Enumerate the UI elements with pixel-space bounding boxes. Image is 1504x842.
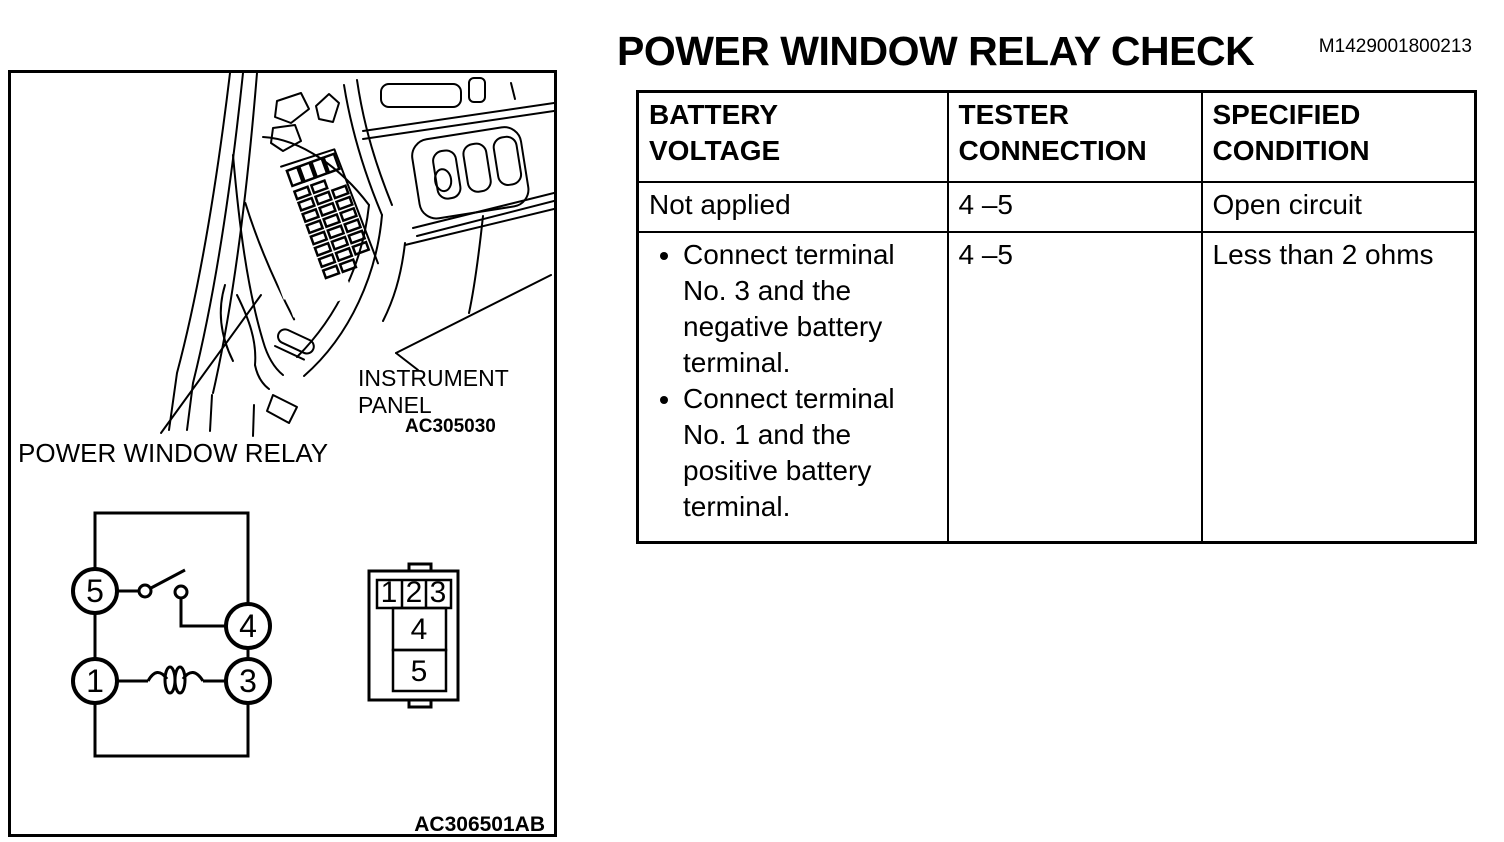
coil-icon <box>117 667 226 693</box>
connector-tab-bottom <box>409 700 431 707</box>
page-title: POWER WINDOW RELAY CHECK <box>617 31 1254 72</box>
dash-lower-seam <box>383 193 554 353</box>
connector-pinout: 1 2 3 4 5 <box>369 564 458 707</box>
circuit-diagram: 5 4 1 3 <box>73 513 270 756</box>
column-header-battery-voltage: BATTERY VOLTAGE <box>638 92 948 183</box>
instrument-panel-label-line1: INSTRUMENT <box>358 365 509 391</box>
pin-number-1: 1 <box>381 576 398 609</box>
list-item: Connect terminal No. 1 and the positive … <box>683 381 941 525</box>
harness-shapes <box>271 93 339 151</box>
power-window-relay-label: POWER WINDOW RELAY <box>18 438 328 468</box>
column-header-specified-condition: SPECIFIED CONDITION <box>1202 92 1476 183</box>
terminal-number-4: 4 <box>239 608 257 644</box>
document-code: M1429001800213 <box>1172 37 1472 56</box>
cell-tester-connection: 4 –5 <box>948 182 1202 232</box>
battery-voltage-steps: Connect terminal No. 3 and the negative … <box>649 237 941 525</box>
switch-contact <box>175 586 187 598</box>
location-figure: INSTRUMENT PANEL AC305030 POWER WINDOW R… <box>8 70 557 837</box>
cell-tester-connection: 4 –5 <box>948 232 1202 543</box>
table-row: Connect terminal No. 3 and the negative … <box>638 232 1476 543</box>
instrument-panel-drawing: INSTRUMENT PANEL AC305030 POWER WINDOW R… <box>11 73 554 834</box>
manual-page: POWER WINDOW RELAY CHECK M1429001800213 … <box>0 0 1504 842</box>
pin-number-3: 3 <box>430 576 447 609</box>
switch-contact <box>139 585 151 597</box>
diagram-code-label: AC306501AB <box>414 813 545 834</box>
pin-number-5: 5 <box>411 655 428 688</box>
terminal-number-5: 5 <box>86 573 104 609</box>
instrument-panel-label-line2: PANEL <box>358 392 432 418</box>
terminal-number-3: 3 <box>239 663 257 699</box>
wiring-lines <box>221 285 297 423</box>
pin-number-2: 2 <box>406 576 423 609</box>
list-item: Connect terminal No. 3 and the negative … <box>683 237 941 381</box>
table-header-row: BATTERY VOLTAGE TESTER CONNECTION SPECIF… <box>638 92 1476 183</box>
photo-code-label: AC305030 <box>405 416 496 437</box>
pin-number-4: 4 <box>411 613 428 646</box>
cell-specified-condition: Less than 2 ohms <box>1202 232 1476 543</box>
connector-tab-top <box>409 564 431 571</box>
side-vent <box>410 125 531 221</box>
cell-specified-condition: Open circuit <box>1202 182 1476 232</box>
cell-battery-voltage: Connect terminal No. 3 and the negative … <box>638 232 948 543</box>
column-header-tester-connection: TESTER CONNECTION <box>948 92 1202 183</box>
terminal-number-1: 1 <box>86 663 104 699</box>
table-row: Not applied 4 –5 Open circuit <box>638 182 1476 232</box>
relay-check-table: BATTERY VOLTAGE TESTER CONNECTION SPECIF… <box>636 90 1477 544</box>
cell-battery-voltage: Not applied <box>638 182 948 232</box>
defroster-vents <box>381 78 515 107</box>
